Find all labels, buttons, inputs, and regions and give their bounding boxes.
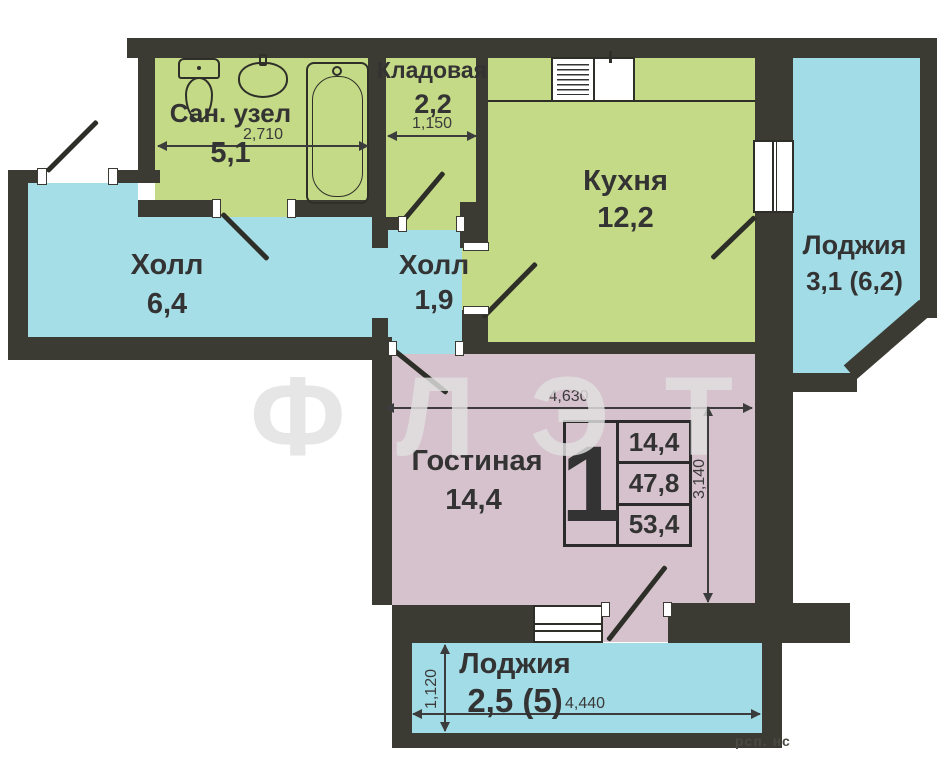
hall-big-name: Холл xyxy=(97,250,237,280)
wall-loggia-right-bottom xyxy=(755,373,857,392)
bathtub-tap-icon xyxy=(332,66,342,76)
loggia-right-name: Лоджия xyxy=(791,231,918,259)
kitchen-label: Кухня xyxy=(548,166,703,196)
legend-rooms-count-cell: 1 xyxy=(566,423,619,544)
wall-hall-left xyxy=(8,170,28,360)
loggia-right-area: 3,1 (6,2) xyxy=(788,268,921,295)
wall-living-bottom-a xyxy=(412,605,533,643)
dim-living-depth: 3,140 xyxy=(691,434,709,524)
bathroom-label: Сан. узел xyxy=(148,100,313,127)
storage-area: 2,2 xyxy=(383,90,483,118)
living-jamb-right xyxy=(455,341,464,356)
wall-living-top xyxy=(460,342,755,354)
wall-bathroom-bottom-a xyxy=(138,200,217,217)
dim-loggia-depth: 1,120 xyxy=(423,644,441,734)
wall-loggia-bottom-left xyxy=(392,605,412,748)
kitchen-name: Кухня xyxy=(548,166,703,196)
legend-rooms-count: 1 xyxy=(561,435,621,532)
living-loggia-window xyxy=(533,605,603,643)
bathroom-name: Сан. узел xyxy=(148,100,313,127)
wall-kitchen-loggia-top xyxy=(755,58,793,140)
wall-hall-top-b xyxy=(113,170,160,183)
storage-name: Кладовая xyxy=(376,59,488,83)
kitchen-loggia-window xyxy=(753,140,794,213)
storage-jamb-right xyxy=(456,216,465,232)
entrance-jamb-left xyxy=(37,168,47,185)
toilet-button-icon xyxy=(197,66,201,70)
wall-loggia-bottom-right xyxy=(762,643,782,743)
floor-plan: 2,710 1,150 4,630 3,140 1,120 4,440 Сан.… xyxy=(0,0,950,761)
dim-line-living-width xyxy=(385,407,752,409)
corner-watermark: рсп. нс xyxy=(735,733,791,749)
storage-jamb-left xyxy=(398,216,407,232)
hall-small-label: Холл xyxy=(384,250,484,279)
entrance-door xyxy=(45,120,99,174)
bathroom-area: 5,1 xyxy=(148,138,313,168)
bathroom-door-opening xyxy=(217,200,290,217)
legend-living-area: 14,4 xyxy=(619,423,689,464)
kitchen-area: 12,2 xyxy=(548,203,703,233)
balcony-jamb-right xyxy=(663,602,672,617)
wall-loggia-bottom-bottom xyxy=(392,733,782,748)
wall-loggia-right-outer xyxy=(920,38,937,318)
living-label: Гостиная xyxy=(386,446,568,476)
loggia-bottom-label: Лоджия xyxy=(440,649,590,679)
washbasin-tap-icon xyxy=(259,54,267,66)
washbasin-icon xyxy=(238,62,288,98)
living-jamb-left xyxy=(388,341,397,356)
hall-small-name: Холл xyxy=(384,250,484,279)
living-area: 14,4 xyxy=(386,485,561,515)
legend-apartment-area: 47,8 xyxy=(619,464,689,505)
kitchen-sink-icon xyxy=(551,57,635,102)
bathroom-jamb-left xyxy=(212,199,221,218)
legend-total-area: 53,4 xyxy=(619,506,689,544)
bathroom-jamb-right xyxy=(287,199,296,218)
apartment-legend: 1 14,4 47,8 53,4 xyxy=(563,420,692,547)
hall-big-label: Холл xyxy=(97,250,237,280)
hall-big-area: 6,4 xyxy=(97,289,237,319)
storage-label: Кладовая xyxy=(376,59,488,83)
balcony-jamb-left xyxy=(601,602,610,617)
loggia-bottom-area: 2,5 (5) xyxy=(440,684,590,718)
living-name: Гостиная xyxy=(386,446,568,476)
loggia-right-label: Лоджия xyxy=(791,231,918,259)
dim-living-width: 4,630 xyxy=(385,388,752,406)
hall-small-area: 1,9 xyxy=(384,285,484,314)
dim-line-storage-width xyxy=(388,135,476,137)
entrance-jamb-right xyxy=(108,168,118,185)
loggia-bottom-name: Лоджия xyxy=(440,649,590,679)
wall-top-band xyxy=(127,38,937,58)
wall-hall-bottom xyxy=(8,337,392,360)
